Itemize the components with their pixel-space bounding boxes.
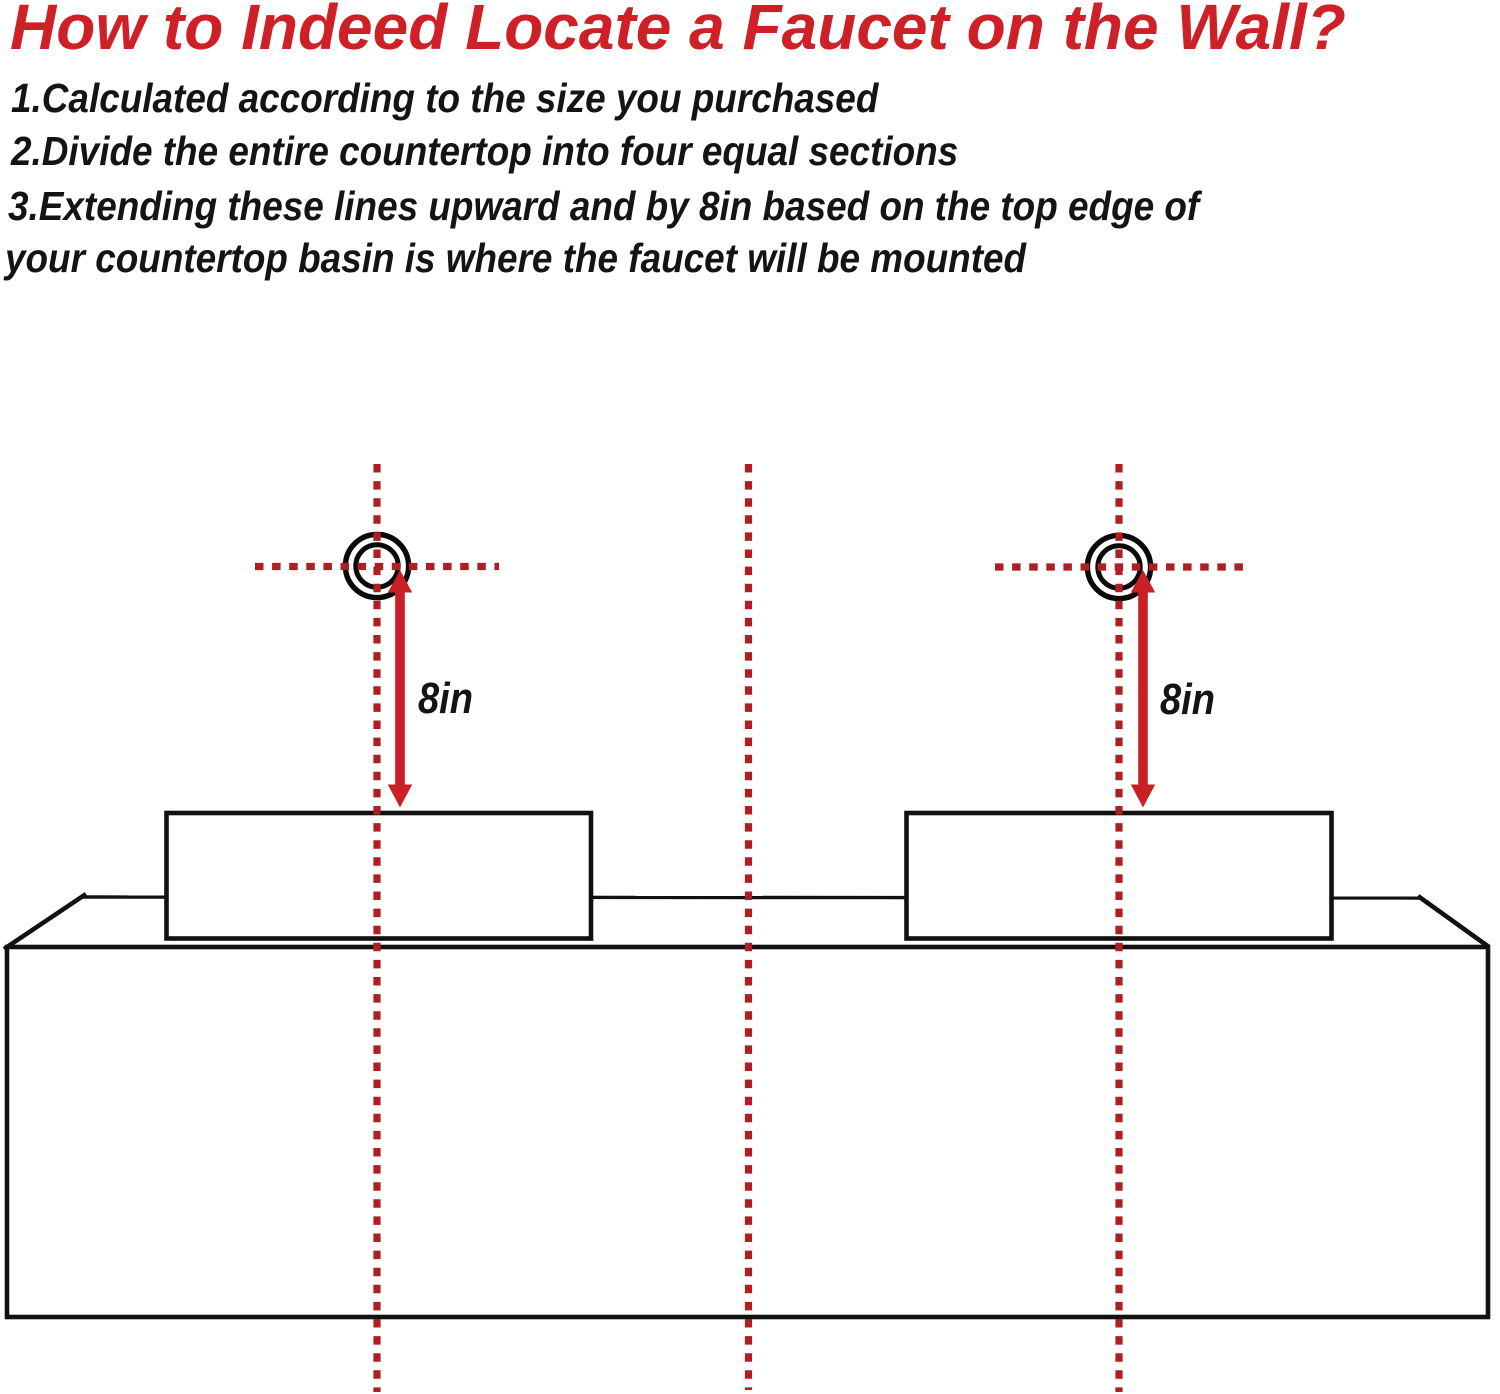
svg-text:8in: 8in [418,674,473,723]
svg-text:8in: 8in [1160,675,1215,724]
